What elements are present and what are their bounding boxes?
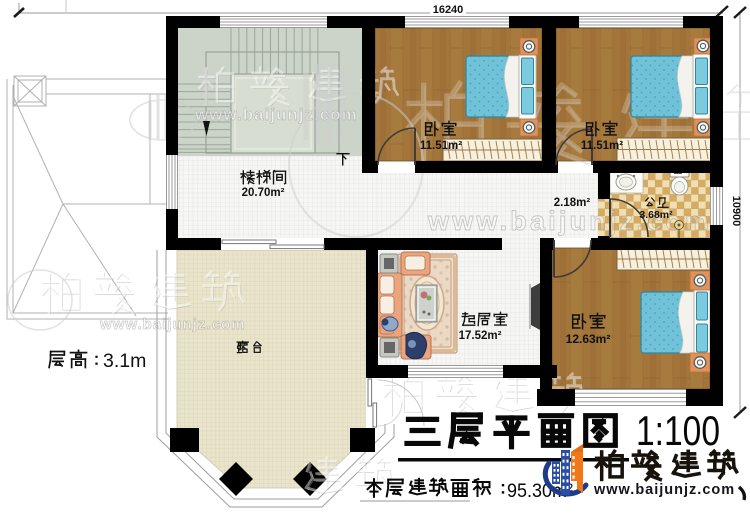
svg-text:11.51m²: 11.51m² xyxy=(581,140,623,152)
svg-text:3.68m²: 3.68m² xyxy=(639,209,673,221)
svg-text:3.1m: 3.1m xyxy=(103,350,146,372)
svg-text:16240: 16240 xyxy=(433,4,464,16)
svg-text:1:100: 1:100 xyxy=(636,407,720,454)
svg-text:www.baijunjz.com: www.baijunjz.com xyxy=(99,316,245,333)
svg-text:www.baijunjz.com: www.baijunjz.com xyxy=(194,105,358,124)
svg-text:20.70m²: 20.70m² xyxy=(242,187,285,199)
svg-text:10900: 10900 xyxy=(730,196,742,227)
svg-text:17.52m²: 17.52m² xyxy=(459,330,502,342)
svg-text:11.51m²: 11.51m² xyxy=(420,140,462,152)
svg-text:2.18m²: 2.18m² xyxy=(554,197,591,209)
svg-text:www.baijunjz.com: www.baijunjz.com xyxy=(593,482,735,498)
svg-text:12.63m²: 12.63m² xyxy=(566,332,611,346)
